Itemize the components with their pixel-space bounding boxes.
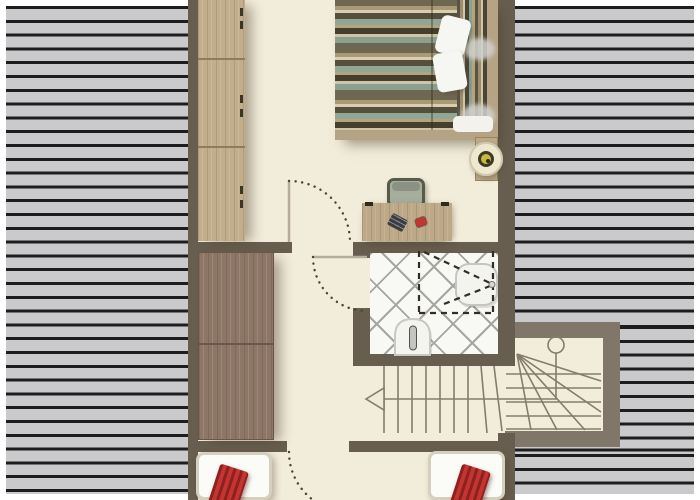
wardrobe-handle — [240, 95, 243, 103]
bathroom-wall-left — [353, 308, 370, 354]
wardrobe-handle — [240, 109, 243, 117]
bathroom-wall-stub — [353, 253, 370, 258]
wall-middle-right — [353, 242, 515, 253]
red-cushion — [207, 463, 249, 500]
bed-sheet — [453, 116, 493, 132]
wardrobe-handle — [240, 186, 243, 194]
wardrobe-handle — [240, 8, 243, 16]
desk — [362, 203, 452, 241]
wardrobe-shelf-divider — [198, 146, 245, 148]
bathroom-tiles — [370, 253, 498, 354]
single-bed-left — [196, 452, 272, 500]
wardrobe-shelf-divider — [198, 58, 245, 60]
pillow — [432, 50, 468, 94]
lamp-bulb — [478, 151, 494, 167]
roof-hatch-left — [6, 6, 188, 494]
roof-hatch-right-bottom — [515, 447, 694, 494]
phone-on-desk — [387, 213, 408, 232]
winder-wall-right — [603, 322, 620, 447]
double-bed — [335, 0, 498, 140]
table-lamp — [469, 142, 503, 176]
wall-right-upper — [498, 0, 515, 366]
desk-handle — [365, 202, 373, 206]
roof-hatch-right-middle — [620, 322, 694, 447]
red-object-on-desk — [415, 217, 427, 228]
roof-hatch-right-top — [514, 6, 694, 322]
wardrobe-divider — [199, 343, 273, 345]
wardrobe-handle — [240, 21, 243, 29]
large-wardrobe — [198, 252, 274, 440]
stairs-wall-top — [353, 354, 515, 366]
single-bed-right — [428, 451, 505, 500]
desk-handle — [441, 202, 449, 206]
wardrobe-handle — [240, 200, 243, 208]
red-cushion — [449, 463, 491, 500]
tall-wardrobe — [198, 0, 245, 241]
floor-plan-canvas — [0, 0, 700, 500]
lamp-center-dot — [486, 159, 490, 163]
winder-wall-bottom — [505, 431, 620, 447]
chair-backrest — [392, 182, 420, 191]
duvet-fold — [463, 38, 495, 60]
wall-bottom-left — [188, 441, 287, 452]
